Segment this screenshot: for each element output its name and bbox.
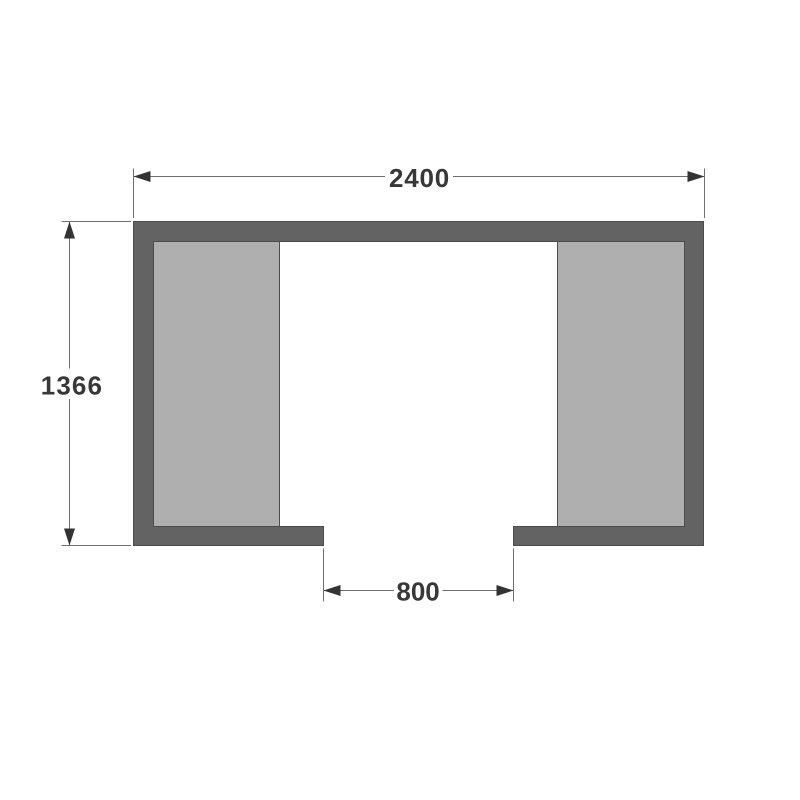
svg-text:2400: 2400: [389, 163, 450, 193]
svg-text:800: 800: [396, 577, 439, 607]
svg-text:1366: 1366: [41, 371, 103, 401]
